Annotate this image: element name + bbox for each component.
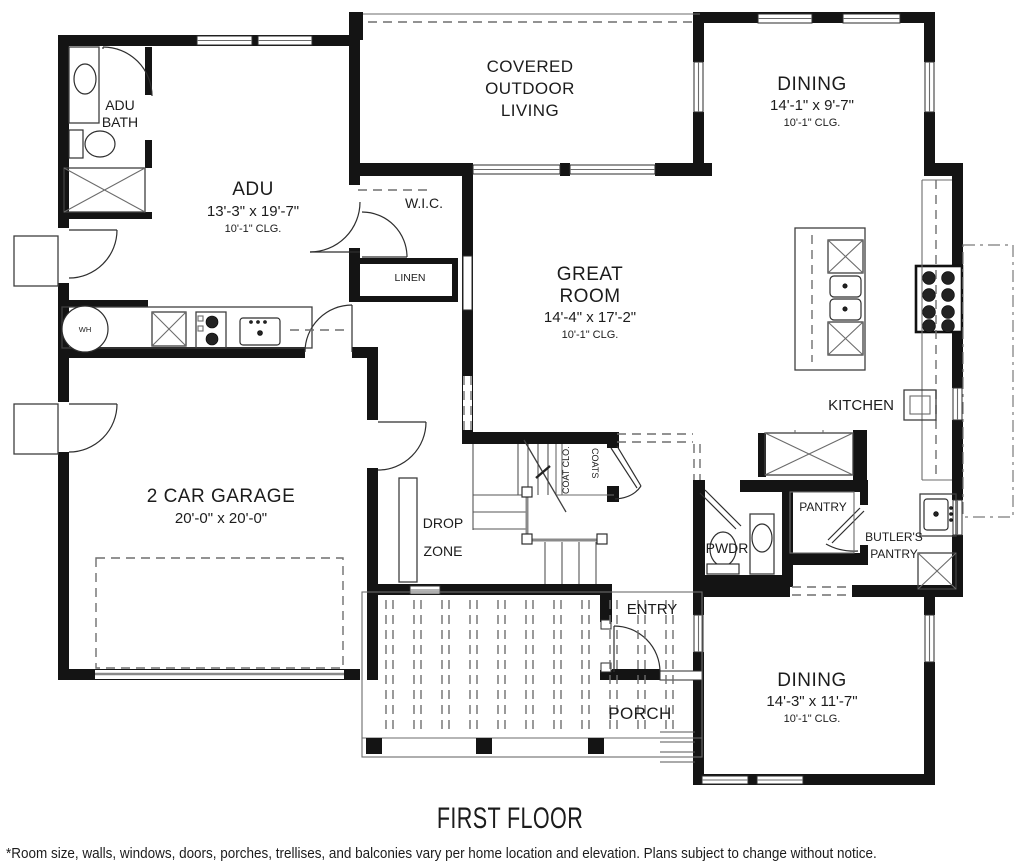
great-room-label: ROOM: [559, 286, 620, 307]
kitchen-fixtures: [765, 180, 1013, 517]
adu-room-door: [310, 202, 360, 252]
adu-dims: 13'-3" x 19'-7": [207, 203, 299, 220]
pwdr-door: [700, 490, 741, 529]
porch-label: PORCH: [608, 704, 671, 723]
drop-zone-label: DROP: [423, 515, 463, 531]
butlers-cabinet-x: [918, 553, 956, 589]
pedestal-sink: [750, 514, 774, 574]
pantry-label: PANTRY: [799, 500, 847, 514]
dining-top-label: DINING: [777, 74, 847, 95]
cooktop: [196, 312, 226, 348]
pwdr-label: PWDR: [706, 540, 749, 556]
roof-overhang-dashed: [963, 245, 1013, 517]
window: [953, 388, 962, 420]
kitchen-label: KITCHEN: [828, 397, 894, 414]
cased-opening: [463, 376, 472, 430]
linen-label: LINEN: [395, 272, 426, 284]
drop-zone-bench: [399, 478, 417, 582]
labels: ADU BATH ADU 13'-3" x 19'-7" 10'-1" CLG.…: [102, 57, 923, 725]
dining-top-ceiling: 10'-1" CLG.: [784, 117, 841, 129]
adu-label: ADU: [232, 179, 274, 200]
covered-outdoor-living-label: COVERED: [487, 57, 574, 76]
drop-zone-label: ZONE: [424, 543, 463, 559]
pantry-door: [826, 508, 864, 551]
utility-and-kitchenette: WH: [62, 306, 345, 352]
coat-closet-label: COAT CLO.: [561, 446, 571, 494]
window: [473, 165, 560, 174]
island-cabinet-x: [828, 322, 863, 355]
island-double-sink: [830, 276, 861, 320]
kitchen-island: [795, 228, 865, 370]
titles: FIRST FLOOR *Room size, walls, windows, …: [6, 800, 877, 862]
window: [410, 586, 440, 594]
garage-ceiling-dashed: [96, 558, 343, 668]
adu-bath-door: [103, 47, 152, 96]
window: [758, 14, 812, 23]
window: [953, 500, 962, 535]
great-room-ceiling: 10'-1" CLG.: [562, 329, 619, 341]
covered-outdoor-living-label: OUTDOOR: [485, 79, 575, 98]
window: [757, 776, 803, 784]
window: [694, 62, 703, 112]
sink-basin: [74, 64, 96, 94]
window: [843, 14, 900, 23]
shower: [64, 168, 145, 212]
wall-oven: [904, 390, 936, 420]
wic-door: [362, 212, 407, 257]
range: [916, 266, 962, 332]
window: [570, 165, 655, 174]
fireplace: [463, 256, 472, 310]
hall-bench: [765, 430, 853, 475]
wic-label: W.I.C.: [405, 195, 443, 211]
coats-label: COATS: [590, 448, 600, 478]
entry-label: ENTRY: [627, 601, 678, 618]
left-exterior-door-2: [14, 404, 117, 454]
toilet: [69, 130, 115, 158]
kitchenette-sink: [240, 318, 280, 345]
window: [702, 776, 748, 784]
stair-direction-line: [524, 440, 566, 512]
water-heater: WH: [62, 306, 108, 352]
butlers-pantry-label: BUTLER'S: [865, 530, 923, 544]
great-room-dims: 14'-4" x 17'-2": [544, 309, 636, 326]
window: [925, 615, 934, 662]
garage-dropzone-door: [378, 422, 426, 470]
garage-dims: 20'-0" x 20'-0": [175, 510, 267, 527]
island-cabinet-x: [828, 240, 863, 273]
butlers-pantry-label: PANTRY: [870, 547, 918, 561]
covered-outdoor-living-edge: [363, 14, 700, 22]
water-heater-label: WH: [79, 325, 92, 334]
dining-top-dims: 14'-1" x 9'-7": [770, 97, 854, 114]
plan-title: FIRST FLOOR: [437, 800, 583, 834]
garage-details: [95, 558, 344, 679]
covered-outdoor-living-label: LIVING: [501, 101, 559, 120]
porch-posts: [366, 738, 604, 754]
floor-plan-page: WH: [0, 0, 1020, 866]
adu-bath-label: ADU: [105, 97, 135, 113]
base-cabinet-x: [152, 312, 186, 346]
great-room-label: GREAT: [557, 264, 624, 285]
garage-label: 2 CAR GARAGE: [147, 486, 296, 507]
dining-bottom-dims: 14'-3" x 11'-7": [766, 693, 857, 710]
plan-disclaimer: *Room size, walls, windows, doors, porch…: [6, 845, 877, 862]
window: [258, 36, 312, 45]
left-exterior-door-1: [14, 230, 117, 286]
dining-bottom-ceiling: 10'-1" CLG.: [784, 713, 841, 725]
dining-bottom-label: DINING: [777, 670, 847, 691]
window: [197, 36, 252, 45]
floor-plan-drawing: WH: [0, 0, 1020, 866]
adu-bath-label: BATH: [102, 114, 138, 130]
butlers-sink: [920, 494, 956, 536]
window: [925, 62, 934, 112]
adu-ceiling: 10'-1" CLG.: [225, 223, 282, 235]
